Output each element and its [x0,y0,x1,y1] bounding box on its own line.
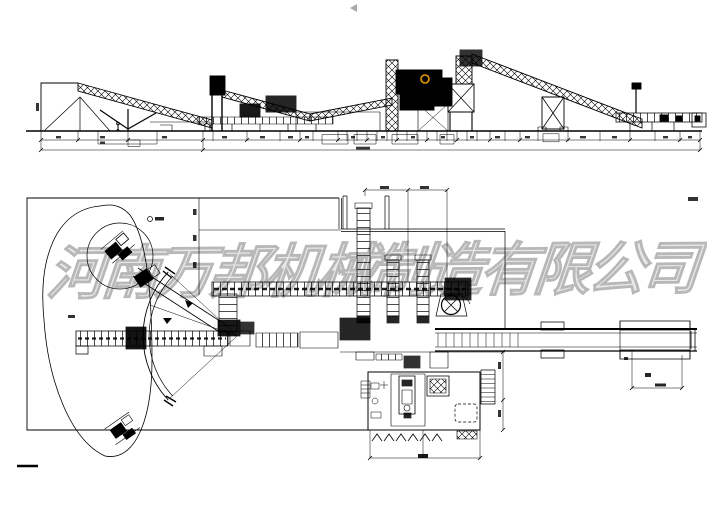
discharge-mast-flag [632,83,641,89]
elevation-view [26,50,706,152]
crusher-body-lower [400,94,434,110]
crusher-motor-block [434,78,452,106]
worker-figure [117,122,120,131]
plan-dim-top-labels [380,186,429,189]
survey-point-label [155,217,164,221]
tail-drive-block-b [676,116,682,121]
machine-room [361,372,480,430]
stockpile-dim-box [128,140,140,147]
mobile-machine-lower [105,412,142,446]
north-conveyor-band [219,294,237,332]
incline-support-tower [538,97,568,131]
vent-chevrons [372,434,442,441]
alt-position-conveyor [133,264,226,333]
screen-deck-box [266,96,296,112]
stacker-support-frame [100,109,156,131]
survey-point-mark [148,217,153,222]
cad-drawing-canvas [0,0,707,529]
discharge-conveyor-band [616,113,702,122]
stockpile-bin-outline [41,83,78,131]
pivot-carriage [126,327,146,349]
plan-dim-top-line [365,190,447,282]
stockpile-triangle [44,97,110,131]
mid-junction-blocks [256,318,448,368]
top-band-end-cluster [445,278,471,300]
east-conveyor-dims [624,351,684,390]
tail-end-pulley [695,116,700,121]
east-conveyor-band [435,329,697,351]
vibrating-screen-box [240,104,260,117]
end-carriage [620,321,690,359]
cad-drawing-viewport: 河南万邦机械制造有限公司 [0,0,707,529]
plan-dim-right [498,350,505,432]
stair-column [481,370,495,404]
dimension-callout-boxes [322,134,559,144]
west-end-square [76,346,88,354]
plan-view [17,186,698,466]
machine-room-hatched-strip [457,431,477,439]
screen-tower-posts [212,95,222,131]
cursor-icon [350,4,357,12]
incline-head-chute [460,50,482,66]
ground-conveyor-band [198,117,333,124]
vertical-conveyor-bands [355,203,431,323]
mobile-machine-upper [101,231,137,266]
plan-gridline-marks [68,197,698,318]
tail-drive-block-a [660,115,668,121]
stacker-conveyor-truss [78,83,212,128]
